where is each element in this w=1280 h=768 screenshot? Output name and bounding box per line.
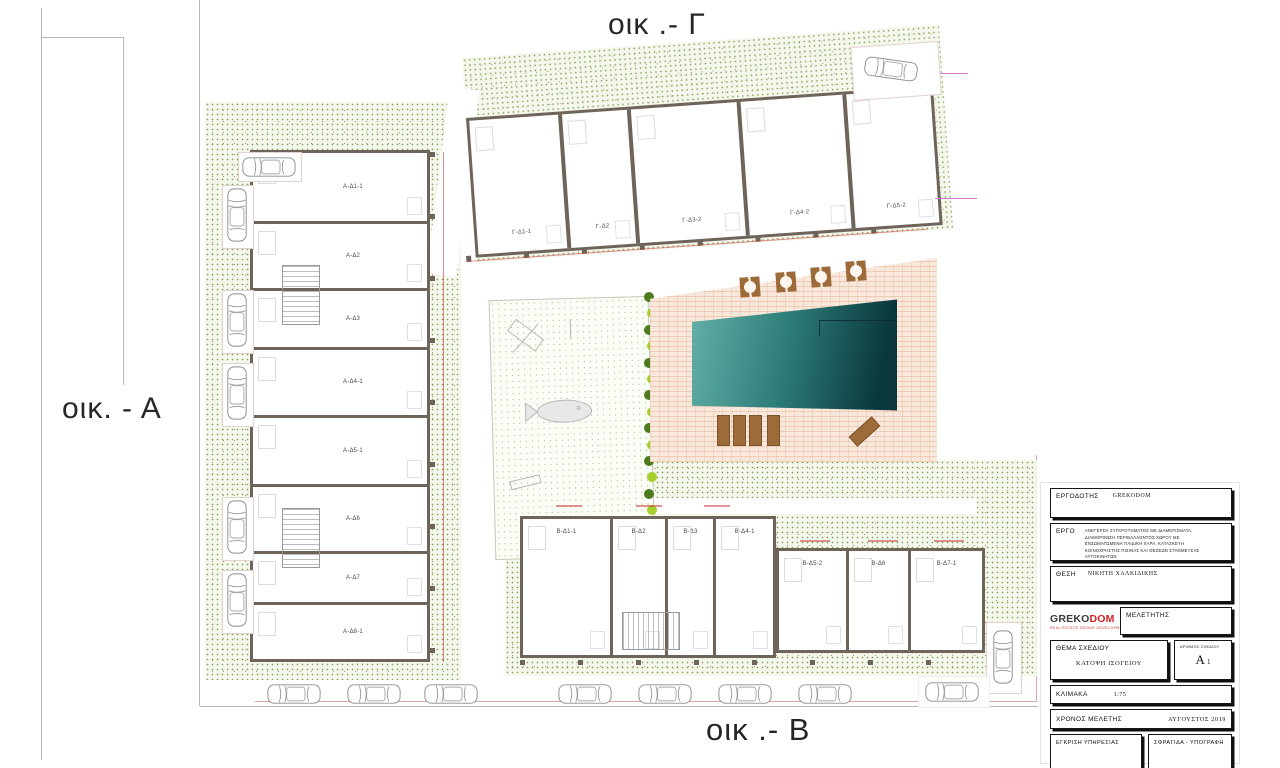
scale-label: ΚΛΙΜΑΚΑ <box>1056 691 1088 698</box>
drawing-number-label: ΑΡΙΘΜΟΣ ΣΧΕΔΙΟΥ <box>1180 645 1226 649</box>
unit-cell: Γ-Δ3-2 <box>631 102 750 243</box>
car-icon <box>240 156 298 178</box>
unit-label: Β-Δ3 <box>683 529 697 535</box>
car-icon <box>226 364 248 422</box>
unit-cell: Β-Δ7-1 <box>911 551 982 650</box>
title-row-drawing: ΘΕΜΑ ΣΧΕΔΙΟΥ ΚΑΤΟΨΗ ΙΣΟΓΕΙΟΥ ΑΡΙΘΜΟΣ ΣΧΕ… <box>1050 640 1232 680</box>
logo-text-dom: DOM <box>1090 613 1115 625</box>
car-icon <box>226 291 248 349</box>
grekodom-logo: GREKODOM REAL ESTATE GROUP DEVELOPMENT <box>1050 607 1114 635</box>
title-block: ΕΡΓΟΔΟΤΗΣ GREKODOM ΕΡΓΟ ΑΝΕΓΕΡΣΗ ΣΥΓΚΡΟΤ… <box>1050 488 1232 768</box>
car-icon <box>716 683 774 705</box>
designer-box: ΜΕΛΕΤΗΤΗΣ <box>1120 607 1232 635</box>
site-plan-canvas: Α-Δ1-1Α-Δ2Α-Δ3Α-Δ4-1Α-Δ5-1Α-Δ6Α-Δ7Α-Δ8-1… <box>0 0 1280 768</box>
car-icon <box>226 571 248 629</box>
drawing-number-value: Α 1 <box>1180 652 1226 668</box>
title-row-client: ΕΡΓΟΔΟΤΗΣ GREKODOM <box>1050 488 1232 518</box>
unit-cell: Β-Δ5-2 <box>779 551 849 650</box>
unit-label: Β-Δ4-1 <box>735 529 755 535</box>
unit-label: Α-Δ4-1 <box>343 379 363 385</box>
drawing-number-digit: 1 <box>1207 658 1211 666</box>
tree-icon <box>644 489 654 499</box>
sunbed-icon <box>749 415 762 446</box>
tree-icon <box>647 472 657 482</box>
car-icon <box>923 681 981 703</box>
unit-label: Γ-Δ2 <box>596 223 610 230</box>
location-value: ΝΙΚΗΤΗ ΧΑΛΚΙΔΙΚΗΣ <box>1088 571 1158 577</box>
title-row-location: ΘΕΣΗ ΝΙΚΗΤΗ ΧΑΛΚΙΔΙΚΗΣ <box>1050 566 1232 602</box>
date-value: ΑΥΓΟΥΣΤΟΣ 2019 <box>1168 716 1226 723</box>
car-icon <box>636 683 694 705</box>
dimension-text-red <box>934 540 964 542</box>
sunbed-icon <box>733 415 746 446</box>
car-icon <box>265 683 323 705</box>
unit-label: Α-Δ2 <box>346 253 360 259</box>
pool-step-line-v <box>819 320 820 337</box>
stairs-alpha-2 <box>282 508 320 568</box>
colonnade-beta <box>520 660 982 665</box>
title-row-project: ΕΡΓΟ ΑΝΕΓΕΡΣΗ ΣΥΓΚΡΟΤΗΜΑΤΟΣ ΜΕ ΔΙΑΜΕΡΙΣΜ… <box>1050 523 1232 561</box>
car-icon <box>345 683 403 705</box>
title-row-date: ΧΡΟΝΟΣ ΜΕΛΕΤΗΣ ΑΥΓΟΥΣΤΟΣ 2019 <box>1050 709 1232 729</box>
unit-cell: Β-Δ1-1 <box>523 519 613 655</box>
drawing-title-label: ΘΕΜΑ ΣΧΕΔΙΟΥ <box>1056 645 1162 652</box>
unit-cell: Γ-Δ5-2 <box>847 89 940 229</box>
dimension-text-red <box>556 505 582 507</box>
approval-label: ΕΓΚΡΙΣΗ ΥΠΗΡΕΣΙΑΣ <box>1056 740 1119 746</box>
location-label: ΘΕΣΗ <box>1056 571 1076 578</box>
drawing-number-box: ΑΡΙΘΜΟΣ ΣΧΕΔΙΟΥ Α 1 <box>1174 640 1232 680</box>
unit-cell: Β-Δ6 <box>849 551 911 650</box>
drawing-title-value: ΚΑΤΟΨΗ ΙΣΟΓΕΙΟΥ <box>1056 660 1162 667</box>
unit-label: Α-Δ8-1 <box>343 629 363 635</box>
date-label: ΧΡΟΝΟΣ ΜΕΛΕΤΗΣ <box>1056 716 1122 723</box>
client-label: ΕΡΓΟΔΟΤΗΣ <box>1056 493 1099 500</box>
logo-tagline: REAL ESTATE GROUP DEVELOPMENT <box>1050 626 1114 630</box>
umbrella-table-icon <box>845 260 866 281</box>
unit-cell: Α-Δ6 <box>253 487 427 554</box>
unit-cell: Α-Δ5-1 <box>253 418 427 487</box>
stairs-alpha-1 <box>282 265 320 325</box>
title-row-scale: ΚΛΙΜΑΚΑ 1:75 <box>1050 685 1232 704</box>
sunbed-icon <box>767 415 780 446</box>
scale-value: 1:75 <box>1114 692 1127 698</box>
client-value: GREKODOM <box>1113 493 1151 499</box>
block-label-gamma: οικ .- Γ <box>608 8 706 42</box>
unit-label: Γ-Δ3-2 <box>682 217 702 224</box>
unit-label: Γ-Δ5-2 <box>887 203 907 210</box>
drawing-number-letter: Α <box>1196 652 1205 668</box>
dimension-line-alpha <box>443 152 444 662</box>
logo-text-greko: GREKO <box>1050 613 1090 625</box>
project-value: ΑΝΕΓΕΡΣΗ ΣΥΓΚΡΟΤΗΜΑΤΟΣ ΜΕ ΔΙΑΜΕΡΙΣΜΑΤΑ, … <box>1085 528 1213 561</box>
dimension-text-red <box>800 540 830 542</box>
unit-label: Β-Δ2 <box>632 529 646 535</box>
dimension-text-red <box>636 505 662 507</box>
unit-label: Α-Δ3 <box>346 316 360 322</box>
unit-label: Β-Δ1-1 <box>556 529 576 535</box>
sunbed-icon <box>717 415 730 446</box>
unit-label: Γ-Δ1-1 <box>512 229 532 236</box>
project-label: ΕΡΓΟ <box>1056 528 1075 535</box>
unit-label: Α-Δ5-1 <box>343 448 363 454</box>
unit-label: Β-Δ6 <box>871 561 885 567</box>
unit-cell: Α-Δ3 <box>253 291 427 350</box>
building-alpha: Α-Δ1-1Α-Δ2Α-Δ3Α-Δ4-1Α-Δ5-1Α-Δ6Α-Δ7Α-Δ8-1 <box>250 150 430 662</box>
road-line-corner <box>42 37 123 38</box>
stairs-beta <box>622 612 680 650</box>
stamp-label: ΣΦΡΑΓΙΔΑ - ΥΠΟΓΡΑΦΗ <box>1154 740 1224 746</box>
unit-cell: Α-Δ7 <box>253 554 427 605</box>
unit-cell: Α-Δ2 <box>253 224 427 291</box>
unit-label: Α-Δ1-1 <box>343 184 363 190</box>
car-icon <box>556 683 614 705</box>
unit-label: Γ-Δ4-2 <box>790 209 810 216</box>
site-boundary-left <box>199 0 200 706</box>
road-line-left <box>41 8 42 760</box>
title-row-stamps: ΕΓΚΡΙΣΗ ΥΠΗΡΕΣΙΑΣ ΣΦΡΑΓΙΔΑ - ΥΠΟΓΡΑΦΗ <box>1050 734 1232 768</box>
car-icon <box>226 498 248 556</box>
unit-cell: Γ-Δ2 <box>562 109 640 247</box>
unit-label: Α-Δ7 <box>346 575 360 581</box>
umbrella-table-icon <box>810 266 831 287</box>
unit-cell: Β-Δ4-1 <box>716 519 773 655</box>
car-icon <box>226 186 248 244</box>
drawing-title-box: ΘΕΜΑ ΣΧΕΔΙΟΥ ΚΑΤΟΨΗ ΙΣΟΓΕΙΟΥ <box>1050 640 1168 680</box>
car-icon <box>992 628 1014 686</box>
unit-label: Β-Δ7-1 <box>937 561 957 567</box>
approval-box: ΕΓΚΡΙΣΗ ΥΠΗΡΕΣΙΑΣ <box>1050 734 1142 768</box>
grekodom-logo-row: GREKODOM <box>1050 613 1114 625</box>
block-label-beta: οικ .- Β <box>706 712 810 748</box>
dimension-line-magenta <box>935 198 977 199</box>
stamp-box: ΣΦΡΑΓΙΔΑ - ΥΠΟΓΡΑΦΗ <box>1148 734 1232 768</box>
unit-cell: Α-Δ8-1 <box>253 605 427 659</box>
car-icon <box>422 683 480 705</box>
building-beta-right: Β-Δ5-2Β-Δ6Β-Δ7-1 <box>776 548 985 653</box>
title-row-designer: GREKODOM REAL ESTATE GROUP DEVELOPMENT Μ… <box>1050 607 1232 635</box>
umbrella-table-icon <box>775 271 796 292</box>
dimension-text-red <box>704 505 730 507</box>
colonnade-alpha <box>430 152 435 660</box>
unit-cell: Γ-Δ4-2 <box>741 94 856 235</box>
road-line-inner <box>123 37 124 385</box>
unit-cell: Α-Δ4-1 <box>253 350 427 419</box>
pool-step-line <box>819 320 895 321</box>
unit-cell: Γ-Δ1-1 <box>469 114 571 254</box>
site-boundary-bottom <box>200 706 1038 707</box>
dimension-text-red <box>868 540 898 542</box>
car-icon <box>796 683 854 705</box>
umbrella-table-icon <box>739 276 760 297</box>
unit-label: Β-Δ5-2 <box>803 561 823 567</box>
block-label-alpha: οικ. - Α <box>62 392 162 426</box>
unit-label: Α-Δ6 <box>346 516 360 522</box>
designer-label: ΜΕΛΕΤΗΤΗΣ <box>1126 612 1169 619</box>
